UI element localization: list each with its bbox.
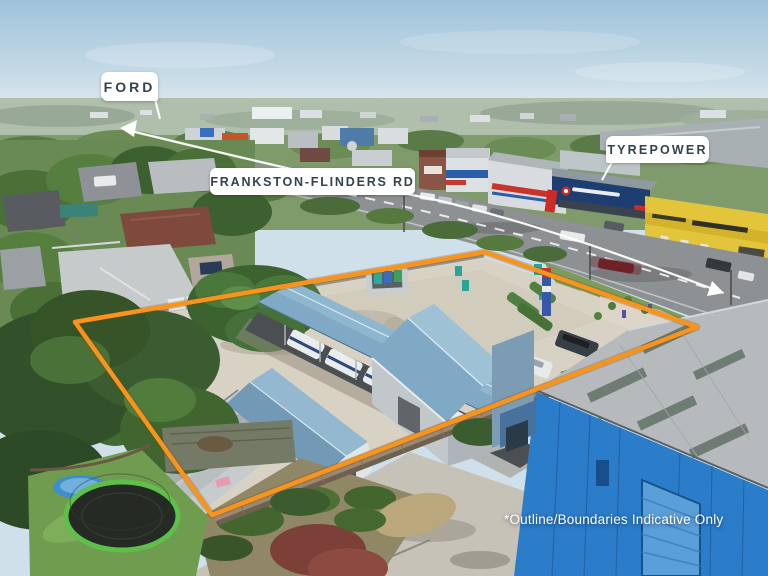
aerial-listing-photo: FORD FRANKSTON-FLINDERS RD TYREPOWER *Ou… [0,0,768,576]
ford-label: FORD [101,72,158,101]
blue-warehouse [492,300,768,576]
road-name-label: FRANKSTON-FLINDERS RD [210,168,415,195]
disclaimer-text: *Outline/Boundaries Indicative Only [504,512,723,527]
tyrepower-label: TYREPOWER [606,136,709,163]
